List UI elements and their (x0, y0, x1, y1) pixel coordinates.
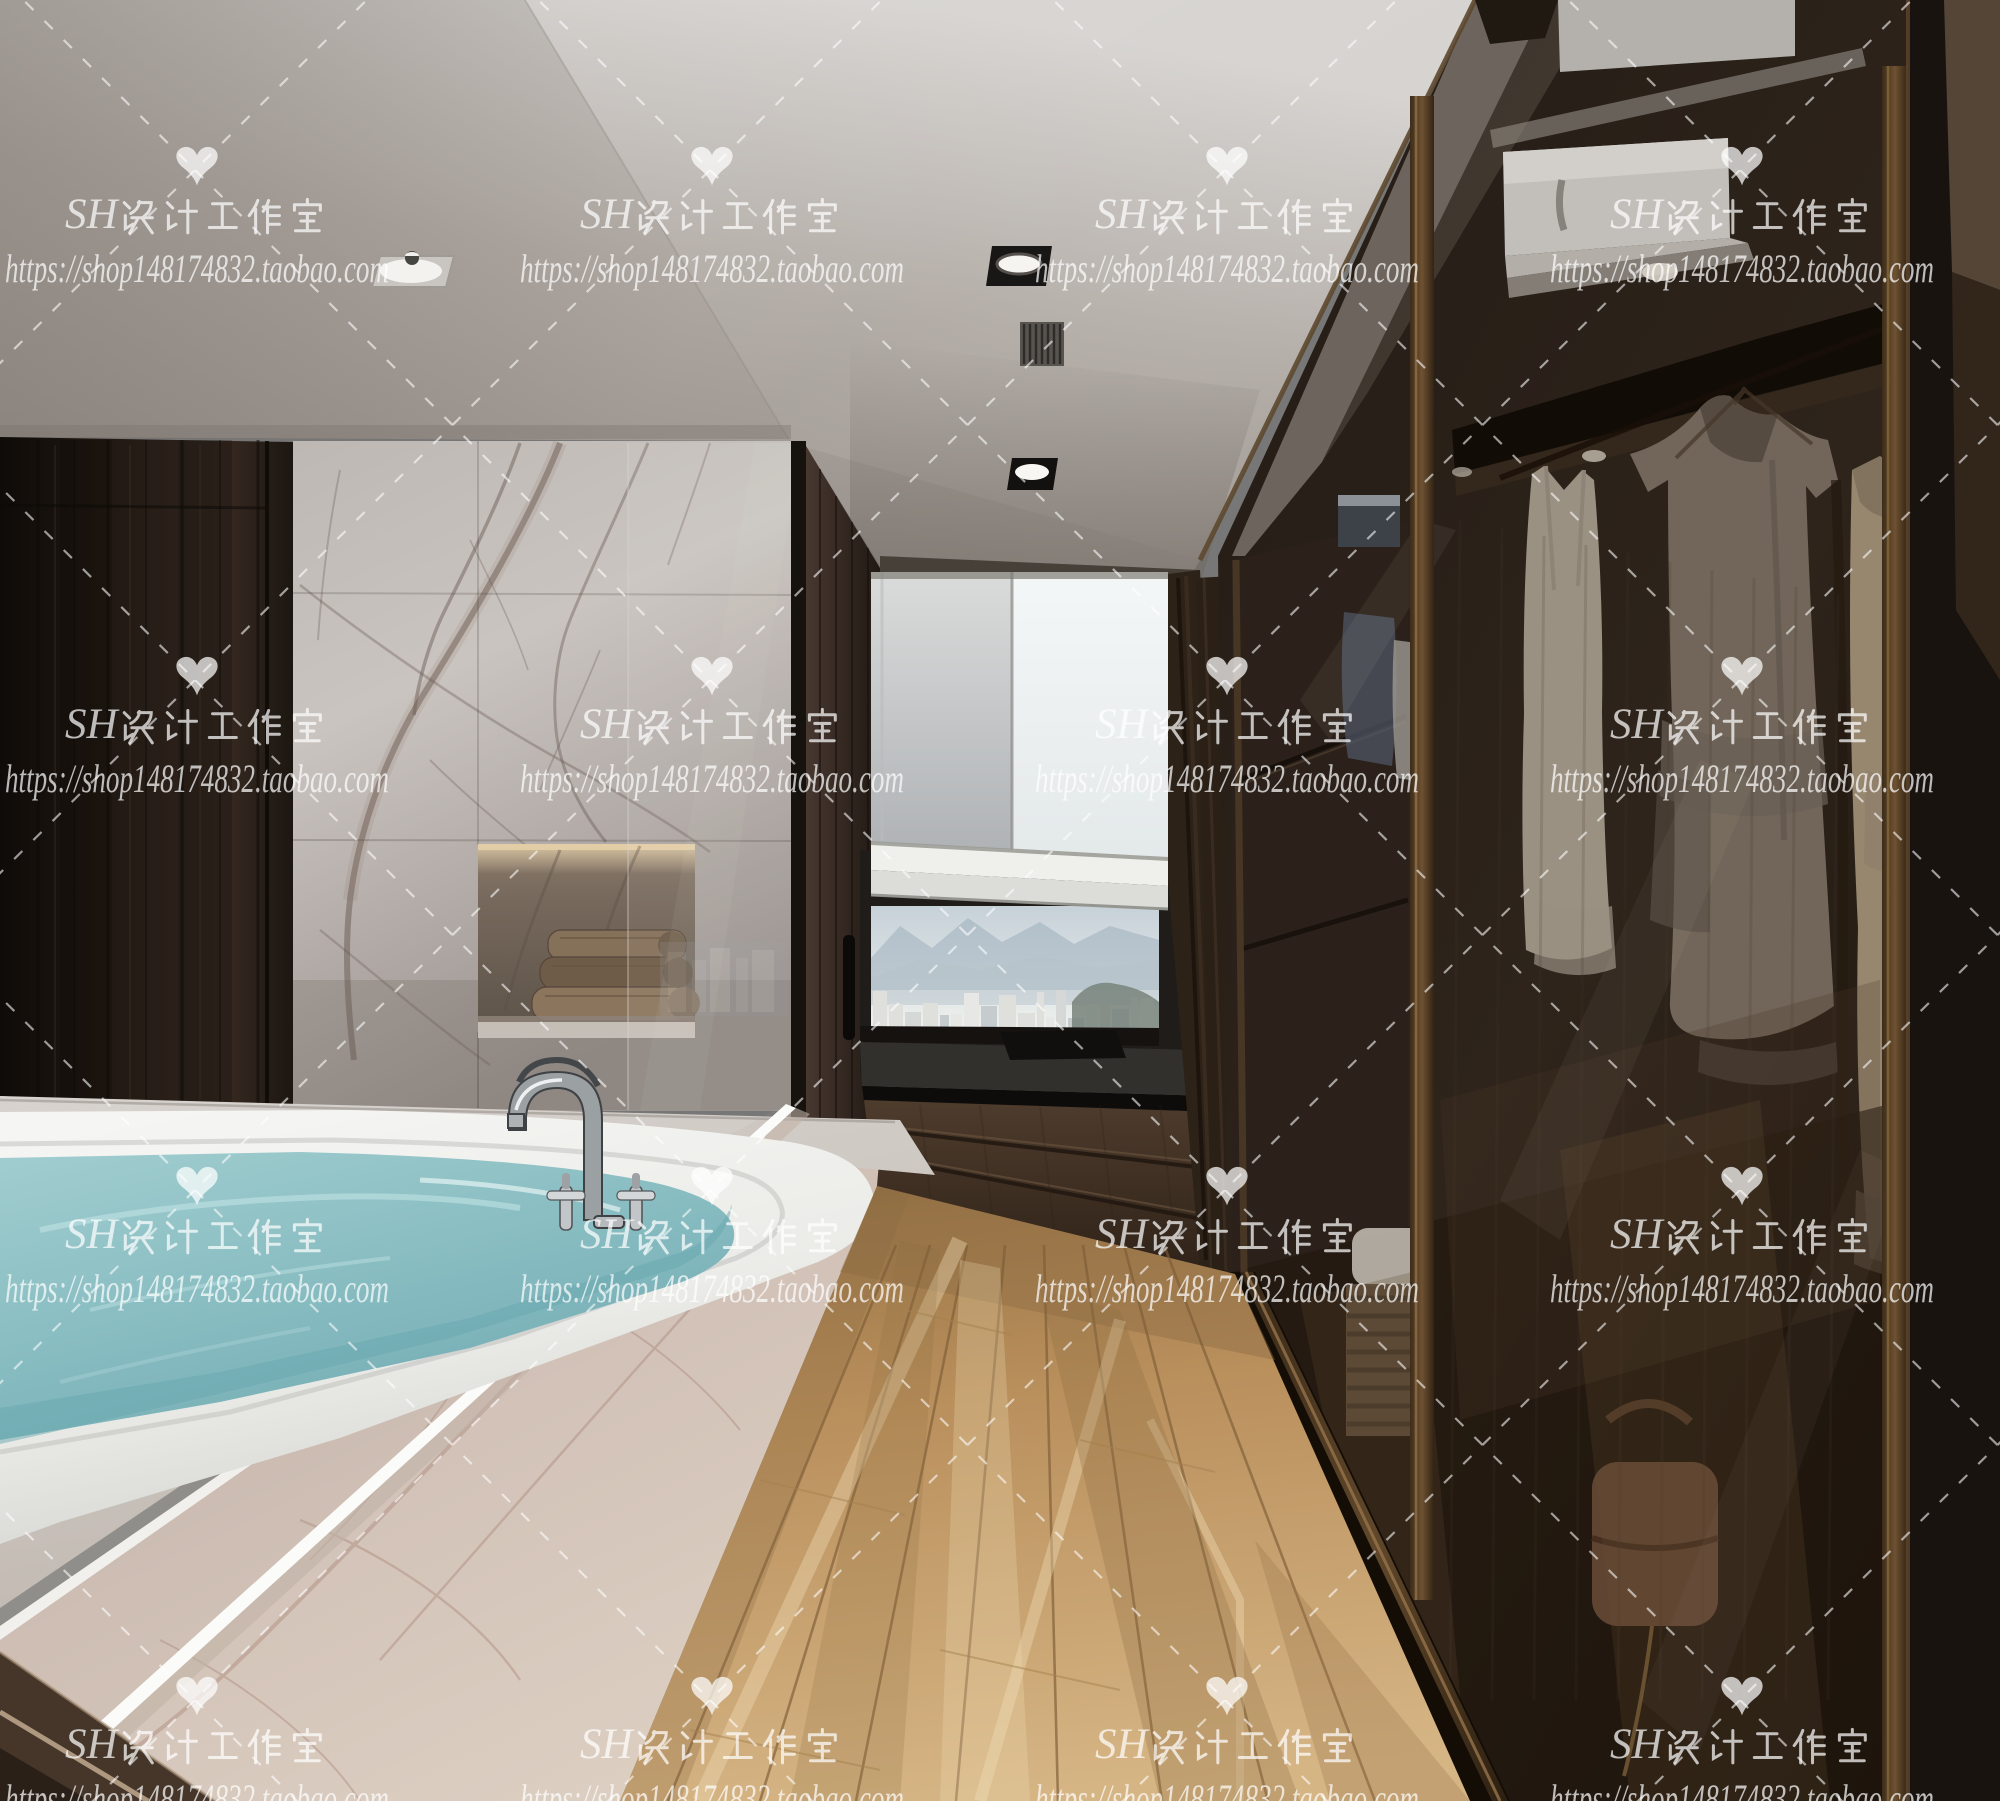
svg-text:SH: SH (1610, 1721, 1665, 1768)
svg-text:SH: SH (580, 1721, 635, 1768)
svg-text:SH: SH (65, 191, 120, 238)
svg-text:SH: SH (1610, 701, 1665, 748)
svg-text:https://shop148174832.taobao.c: https://shop148174832.taobao.com (5, 1776, 389, 1801)
svg-text:SH: SH (1095, 701, 1150, 748)
svg-text:SH: SH (1095, 1211, 1150, 1258)
svg-text:SH: SH (580, 191, 635, 238)
svg-text:SH: SH (65, 701, 120, 748)
svg-text:https://shop148174832.taobao.c: https://shop148174832.taobao.com (1035, 1776, 1419, 1801)
svg-text:SH: SH (580, 701, 635, 748)
svg-text:https://shop148174832.taobao.c: https://shop148174832.taobao.com (5, 756, 389, 801)
svg-text:SH: SH (65, 1721, 120, 1768)
svg-text:SH: SH (1610, 191, 1665, 238)
svg-text:https://shop148174832.taobao.c: https://shop148174832.taobao.com (1550, 1776, 1934, 1801)
svg-text:SH: SH (1095, 1721, 1150, 1768)
svg-text:https://shop148174832.taobao.c: https://shop148174832.taobao.com (5, 246, 389, 291)
svg-text:https://shop148174832.taobao.c: https://shop148174832.taobao.com (1035, 246, 1419, 291)
svg-text:https://shop148174832.taobao.c: https://shop148174832.taobao.com (520, 246, 904, 291)
svg-text:SH: SH (65, 1211, 120, 1258)
svg-text:https://shop148174832.taobao.c: https://shop148174832.taobao.com (520, 1776, 904, 1801)
svg-text:SH: SH (1095, 191, 1150, 238)
svg-text:https://shop148174832.taobao.c: https://shop148174832.taobao.com (520, 1266, 904, 1311)
svg-text:https://shop148174832.taobao.c: https://shop148174832.taobao.com (1035, 1266, 1419, 1311)
svg-text:SH: SH (1610, 1211, 1665, 1258)
svg-text:https://shop148174832.taobao.c: https://shop148174832.taobao.com (1550, 756, 1934, 801)
svg-text:https://shop148174832.taobao.c: https://shop148174832.taobao.com (1550, 246, 1934, 291)
svg-text:https://shop148174832.taobao.c: https://shop148174832.taobao.com (5, 1266, 389, 1311)
svg-text:https://shop148174832.taobao.c: https://shop148174832.taobao.com (1550, 1266, 1934, 1311)
svg-text:SH: SH (580, 1211, 635, 1258)
svg-text:https://shop148174832.taobao.c: https://shop148174832.taobao.com (1035, 756, 1419, 801)
svg-text:https://shop148174832.taobao.c: https://shop148174832.taobao.com (520, 756, 904, 801)
